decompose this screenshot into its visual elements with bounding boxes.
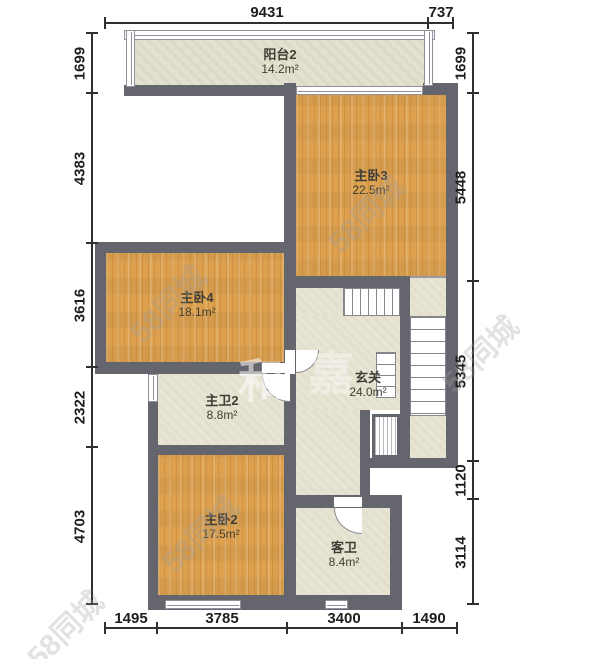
stair-landing-top [410,278,446,316]
wall-bedroom3-bottom [284,276,410,288]
dim-line-top [105,22,454,24]
stair-shaft [372,414,400,458]
tick [86,242,98,244]
dim-left-1: 1699 [73,34,88,94]
wall-bedroom4-left [95,242,106,374]
dim-bottom-2: 3785 [182,610,262,627]
dim-right-1: 1699 [454,34,469,94]
floor-plan: 阳台2 14.2m² 主卧3 22.5m² 主卧4 18.1m² 主卫2 8.8… [0,0,614,659]
bedroom4-label: 主卧4 18.1m² [147,290,247,320]
stair-landing-bottom [410,416,446,458]
guest-bath-label: 客卫 8.4m² [294,540,394,570]
wall-balcony-bottom [124,85,296,96]
tick [467,280,479,282]
guest-bath-name: 客卫 [294,540,394,555]
tick [467,460,479,462]
bath2-name: 主卫2 [172,393,272,408]
dim-bottom-4: 1490 [389,610,469,627]
bedroom3-balcony-window [296,86,423,95]
guest-bath-door-gap [334,497,362,507]
hall-label: 玄关 24.0m² [318,370,418,400]
hall-name: 玄关 [318,370,418,385]
wall-landing-bottom [360,458,446,468]
balcony-window-right [424,30,433,86]
hall-floor-lower [296,410,360,495]
tick [467,32,479,34]
tick [467,603,479,605]
bedroom3-area: 22.5m² [321,183,421,198]
hall-area: 24.0m² [318,385,418,400]
balcony-window-top [124,30,435,40]
tick [467,92,479,94]
wall-bedroom4-top [95,242,292,253]
dim-left-4: 2322 [73,378,88,438]
wall-bath2-bottom [148,445,296,455]
tick [86,603,98,605]
balcony2-name: 阳台2 [230,47,330,62]
dim-top-offset: 737 [411,4,471,21]
bedroom2-area: 17.5m² [171,527,271,542]
tick [86,32,98,34]
tick [286,622,288,634]
tick [467,498,479,500]
bedroom2-label: 主卧2 17.5m² [171,512,271,542]
bath2-window-left [148,374,158,402]
stairs-upper-run [343,288,400,316]
dim-right-2: 5448 [454,158,469,218]
balcony2-area: 14.2m² [230,62,330,77]
guest-bath-area: 8.4m² [294,555,394,570]
dim-left-5: 4703 [73,497,88,557]
bedroom3-name: 主卧3 [321,168,421,183]
dim-right-5: 3114 [454,523,469,583]
balcony-window-left [126,30,135,87]
tick [86,446,98,448]
wall-right-outer [446,83,458,468]
hall-floor-upper [296,288,343,316]
dim-left-3: 3616 [73,276,88,336]
balcony2-label: 阳台2 14.2m² [230,47,330,77]
bath2-label: 主卫2 8.8m² [172,393,272,423]
tick [86,366,98,368]
dim-line-right [472,33,474,605]
dim-bottom-1: 1495 [91,610,171,627]
dim-left-2: 4383 [73,139,88,199]
dim-line-left [91,33,93,605]
tick [104,17,106,29]
dim-bottom-3: 3400 [304,610,384,627]
dim-top-width: 9431 [227,4,307,21]
bedroom3-label: 主卧3 22.5m² [321,168,421,198]
dim-right-4: 1120 [454,451,469,511]
stairs-lower-run [410,316,446,416]
dim-right-3: 5345 [454,342,469,402]
bedroom2-window-bottom [165,600,241,609]
landing-top-line [410,276,446,278]
bedroom4-door-gap [285,350,295,374]
bath2-area: 8.8m² [172,408,272,423]
tick [86,92,98,94]
bedroom2-name: 主卧2 [171,512,271,527]
bedroom4-area: 18.1m² [147,305,247,320]
guest-bath-window-bottom [325,600,348,609]
bedroom4-name: 主卧4 [147,290,247,305]
